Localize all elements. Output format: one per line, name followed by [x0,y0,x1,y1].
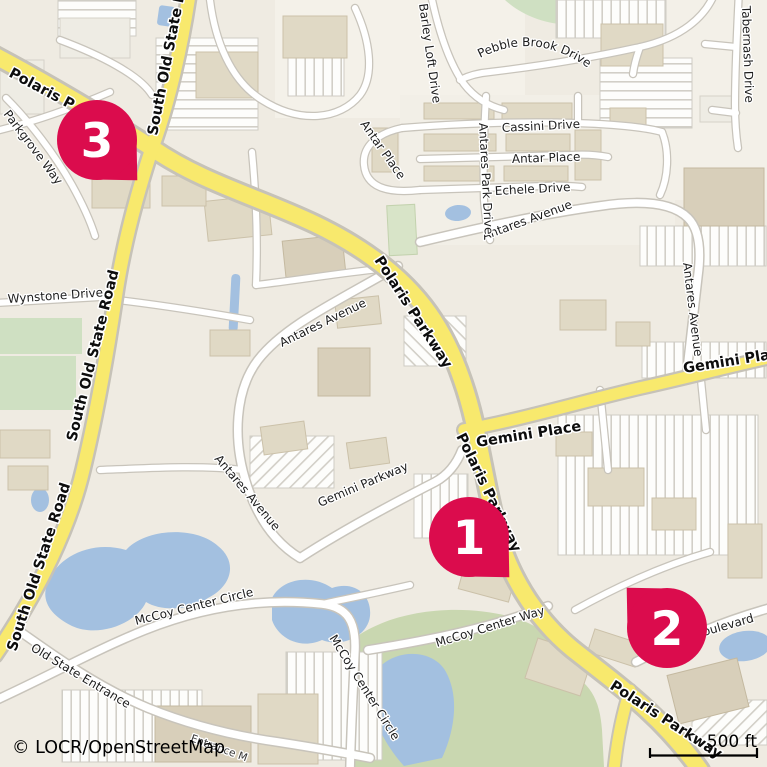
map-pin-2[interactable]: 2 [627,588,707,668]
map-pin-1[interactable]: 1 [429,497,509,577]
map-pin-3[interactable]: 3 [57,100,137,180]
map-attribution: © LOCR/OpenStreetMap [12,738,225,758]
pin-3-number: 3 [81,114,114,169]
pin-1-number: 1 [453,511,486,566]
road-label-antar-place-h: Antar Place [512,150,581,166]
scale-bar-label: 500 ft [707,732,758,752]
map-canvas[interactable]: Polaris P Polaris Parkway Polaris Parkwa… [0,0,767,767]
map-viewport[interactable]: Polaris P Polaris Parkway Polaris Parkwa… [0,0,767,767]
pin-2-number: 2 [651,602,684,657]
